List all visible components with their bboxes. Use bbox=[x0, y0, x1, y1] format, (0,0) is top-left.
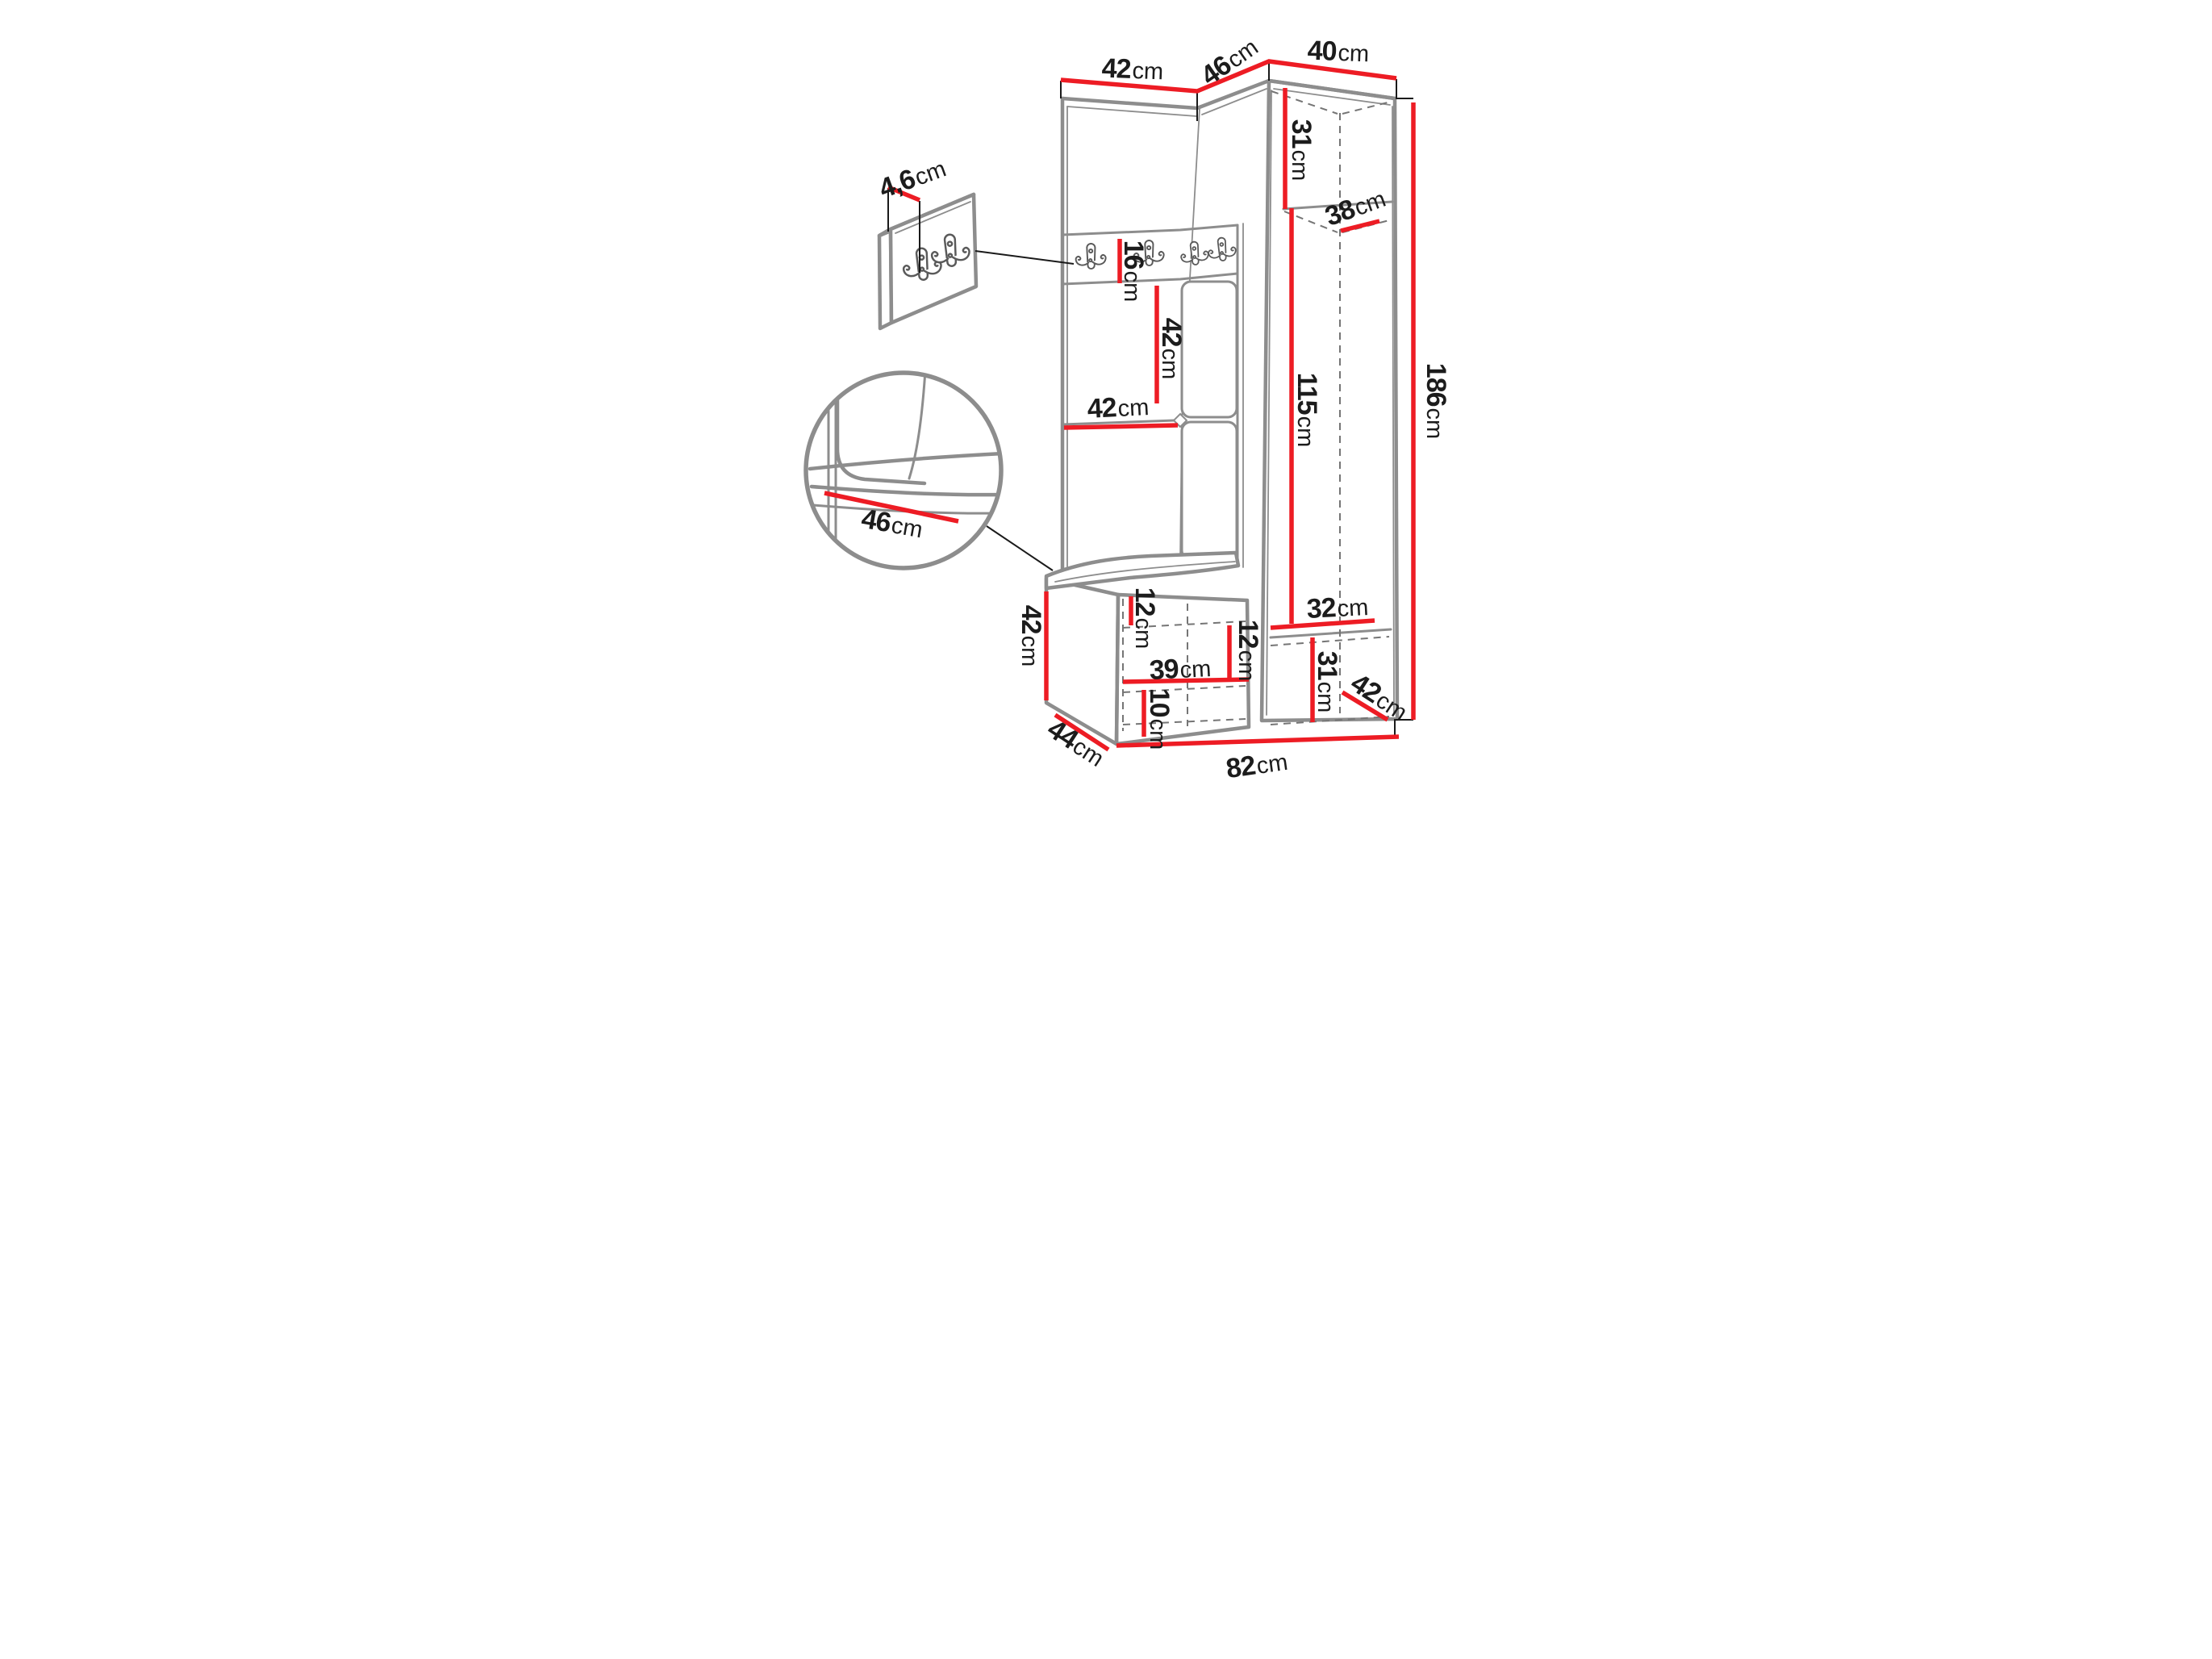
furniture-dimension-diagram: 42cm 46cm 40cm 4,6cm 16cm 42cm 42cm 31cm… bbox=[553, 0, 1659, 829]
coat-hook-row bbox=[1075, 237, 1236, 270]
dashed-interior-lines bbox=[1123, 91, 1391, 731]
hook-panel-detail bbox=[879, 194, 976, 328]
dim-line-hook-panel-thickness bbox=[888, 187, 920, 200]
detail-circle bbox=[806, 358, 1004, 570]
detail-circle-leader-line bbox=[987, 526, 1053, 570]
bench-outline bbox=[1046, 553, 1249, 744]
wardrobe-drawing bbox=[553, 0, 1659, 829]
coat-hook-icon bbox=[1075, 244, 1105, 269]
dim-line-lower-shelf-width bbox=[1271, 621, 1375, 628]
coat-hook-icon bbox=[1207, 237, 1236, 262]
dim-line-niche-width bbox=[1064, 425, 1178, 428]
hook-panel-leader-line bbox=[975, 251, 1074, 264]
coat-hook-icon bbox=[1179, 241, 1208, 266]
dim-line-lower-depth bbox=[1342, 692, 1388, 720]
coat-hook-icon bbox=[1133, 240, 1163, 265]
dim-line-top-widths bbox=[1061, 61, 1396, 91]
dim-line-bench-inner-width bbox=[1123, 679, 1249, 682]
dim-line-top-shelf-depth bbox=[1341, 221, 1379, 231]
